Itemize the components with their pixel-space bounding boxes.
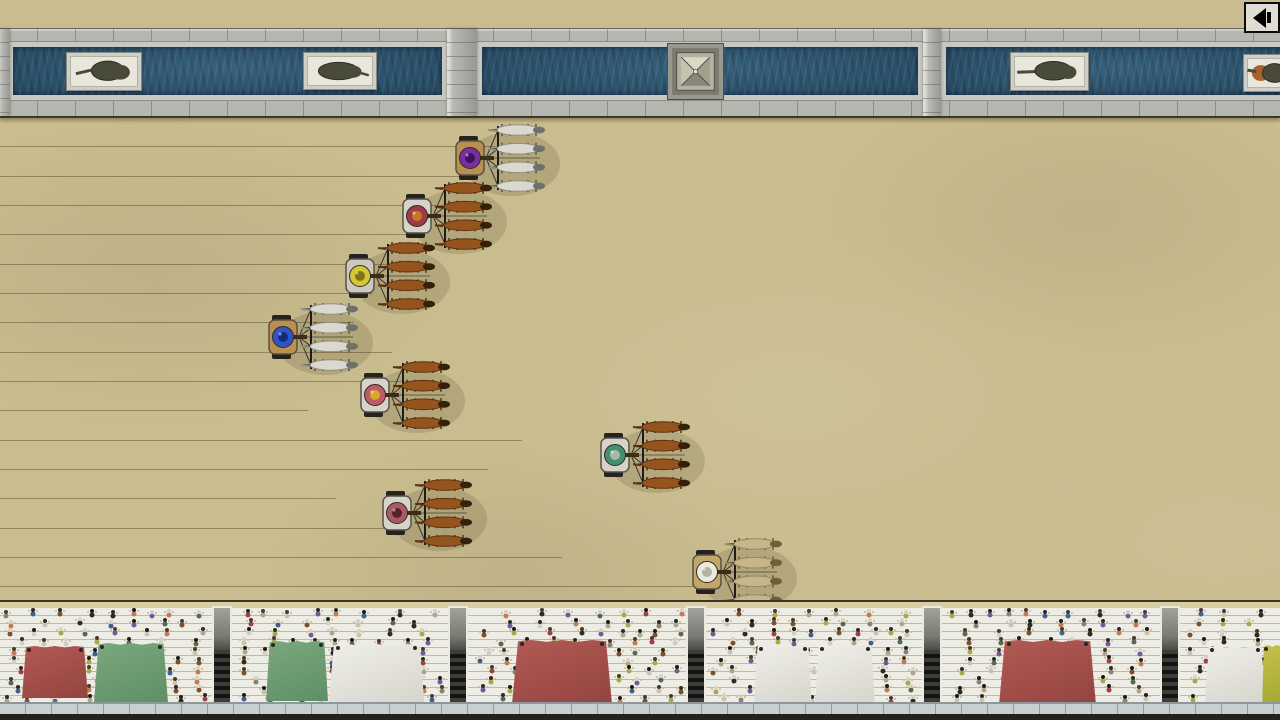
spectator <box>246 609 250 613</box>
spectator <box>88 694 92 698</box>
statue-monument <box>1011 53 1088 90</box>
spectator <box>350 638 354 642</box>
spectator <box>1027 627 1031 631</box>
awning-white <box>1205 646 1265 708</box>
spectator <box>868 618 872 622</box>
spectator <box>176 656 180 660</box>
spectator <box>580 627 584 631</box>
spectator <box>989 665 993 669</box>
awning-tie <box>759 647 763 651</box>
awning-tie <box>803 647 807 651</box>
spectator <box>1222 636 1226 640</box>
spectator <box>58 608 62 612</box>
spectator <box>626 619 630 623</box>
spectator <box>992 657 996 661</box>
awning-tie <box>79 648 83 652</box>
spectator <box>326 617 330 621</box>
spectator <box>574 618 578 622</box>
awning-green <box>266 641 328 701</box>
lane-line <box>0 146 505 147</box>
spectator <box>608 639 612 643</box>
chariot-team-maroon[interactable] <box>367 471 487 560</box>
spectator <box>958 686 962 690</box>
spectator <box>1107 684 1111 688</box>
spectator <box>242 693 246 697</box>
stairway-steps <box>924 650 940 702</box>
spectator <box>638 629 642 633</box>
spectator <box>731 637 735 641</box>
awning-tie <box>866 647 870 651</box>
spectator <box>438 676 442 680</box>
spectator <box>356 619 360 623</box>
spina-water-pool <box>941 42 1280 100</box>
awning-tie <box>1264 647 1268 651</box>
spectator <box>911 695 915 699</box>
spectator <box>247 627 251 631</box>
spectator <box>1088 628 1092 632</box>
grandstand <box>0 600 1280 720</box>
spectator <box>180 619 184 623</box>
spectator <box>1082 618 1086 622</box>
spectator <box>1066 610 1070 614</box>
spectator <box>242 637 246 641</box>
spectator <box>982 684 986 688</box>
spectator <box>132 619 136 623</box>
spectator <box>722 693 726 697</box>
stairway <box>922 606 942 704</box>
spectator <box>824 617 828 621</box>
spina-divider <box>923 29 941 116</box>
spectator <box>969 609 973 613</box>
spectator <box>837 627 841 631</box>
spectator <box>622 609 626 613</box>
spectator <box>132 608 136 612</box>
spectator <box>980 694 984 698</box>
spectator <box>111 610 115 614</box>
spectator <box>5 695 9 699</box>
statue-monument <box>67 53 141 90</box>
spectator <box>960 667 964 671</box>
spectator <box>963 628 967 632</box>
awning-tie <box>1256 648 1260 652</box>
spectator <box>388 628 392 632</box>
spectator <box>1202 637 1206 641</box>
spectator <box>1107 655 1111 659</box>
spectator <box>421 647 425 651</box>
spectator <box>1132 636 1136 640</box>
chariot-team-teal[interactable] <box>585 413 705 502</box>
spectator <box>167 609 171 613</box>
spectator <box>334 608 338 612</box>
spectator <box>867 609 871 613</box>
spectator <box>633 637 637 641</box>
spectator <box>711 667 715 671</box>
spectator <box>900 618 904 622</box>
awning-red <box>22 646 88 698</box>
spectator <box>150 610 154 614</box>
spectator <box>627 665 631 669</box>
spectator <box>1247 618 1251 622</box>
spectator <box>201 627 205 631</box>
spectator <box>42 638 46 642</box>
stairway-steps <box>1162 650 1178 702</box>
spectator <box>525 637 529 641</box>
spectator <box>197 684 201 688</box>
spectator <box>113 627 117 631</box>
spectator <box>285 610 289 614</box>
spectator <box>78 617 82 621</box>
spectator <box>904 610 908 614</box>
spectator <box>9 677 13 681</box>
awning-red <box>512 640 612 704</box>
spectator <box>512 627 516 631</box>
spectator <box>1193 675 1197 679</box>
statue-monument <box>1244 55 1280 91</box>
spectator <box>90 609 94 613</box>
race-track-view <box>0 0 1280 720</box>
awning-tie <box>336 646 340 650</box>
awning-tie <box>1210 648 1214 652</box>
spectator <box>203 693 207 697</box>
spectator <box>196 666 200 670</box>
spectator <box>4 610 8 614</box>
spectator <box>421 657 425 661</box>
spectator <box>1117 627 1121 631</box>
spectator <box>16 685 20 689</box>
spectator <box>635 677 639 681</box>
spectator <box>885 684 889 688</box>
spectator <box>398 609 402 613</box>
spectator <box>19 666 23 670</box>
spectator <box>487 647 491 651</box>
spectator <box>127 637 131 641</box>
spectator <box>1138 648 1142 652</box>
spectator <box>1106 638 1110 642</box>
lane-line <box>0 586 705 587</box>
spectator <box>1259 609 1263 613</box>
spectator <box>1024 608 1028 612</box>
spectator <box>653 657 657 661</box>
lane-line <box>0 469 488 470</box>
spectator <box>242 667 246 671</box>
spectator <box>669 694 673 698</box>
spectator <box>548 627 552 631</box>
spectator <box>679 686 683 690</box>
spectator <box>179 695 183 699</box>
spectator <box>243 646 247 650</box>
spectator <box>1256 638 1260 642</box>
spectator <box>499 638 503 642</box>
spectator <box>420 628 424 632</box>
spectator <box>598 610 602 614</box>
spectator <box>1101 675 1105 679</box>
awning-white <box>328 644 425 708</box>
spectator <box>828 637 832 641</box>
spectator <box>911 667 915 671</box>
spectator <box>1103 648 1107 652</box>
spectator <box>630 685 634 689</box>
spectator <box>659 674 663 678</box>
spectator <box>95 636 99 640</box>
spectator <box>440 685 444 689</box>
spectator <box>988 609 992 613</box>
spectator <box>145 628 149 632</box>
spectator <box>889 627 893 631</box>
spectator <box>426 637 430 641</box>
awning-tie <box>319 643 323 647</box>
spectator <box>1109 666 1113 670</box>
awning-tie <box>158 645 162 649</box>
spectator <box>1139 658 1143 662</box>
spectator <box>276 619 280 623</box>
spectator <box>841 618 845 622</box>
awning-red <box>999 640 1096 705</box>
lane-line <box>0 498 336 499</box>
chariot-team-red[interactable] <box>345 353 465 442</box>
spectator <box>1222 609 1226 613</box>
spectator <box>633 647 637 651</box>
awning-tie <box>100 645 104 649</box>
spectator <box>955 694 959 698</box>
spectator <box>87 665 91 669</box>
spectator <box>31 608 35 612</box>
awning-tie <box>27 648 31 652</box>
spectator <box>743 628 747 632</box>
spectator <box>87 684 91 688</box>
spectator <box>20 637 24 641</box>
spectator <box>508 620 512 624</box>
spectator <box>1137 685 1141 689</box>
spectator <box>661 648 665 652</box>
spectator <box>749 655 753 659</box>
grandstand-edge <box>0 714 1280 720</box>
awning-yellow <box>1262 645 1280 710</box>
spectator <box>261 609 265 613</box>
spectator <box>1007 608 1011 612</box>
spectator <box>362 610 366 614</box>
spectator <box>644 608 648 612</box>
spectator <box>906 677 910 681</box>
spectator <box>881 665 885 669</box>
spectator <box>165 628 169 632</box>
spectator <box>792 627 796 631</box>
spectator <box>1220 629 1224 633</box>
spectator <box>904 646 908 650</box>
spectator <box>1101 619 1105 623</box>
spectator <box>728 646 732 650</box>
spectator <box>1098 609 1102 613</box>
spectator <box>792 638 796 642</box>
awning-tie <box>271 643 275 647</box>
awning-white <box>815 645 875 708</box>
spectator <box>886 647 890 651</box>
spectator <box>997 648 1001 652</box>
stairway <box>448 606 468 704</box>
speaker-icon-box <box>1267 12 1271 23</box>
spectator <box>856 628 860 632</box>
spectator <box>59 627 63 631</box>
spectator <box>481 684 485 688</box>
spectator <box>1126 610 1130 614</box>
spectator <box>674 619 678 623</box>
spectator <box>617 648 621 652</box>
spectator <box>621 629 625 633</box>
spectator <box>8 628 12 632</box>
spectator <box>9 620 13 624</box>
spectator <box>1070 637 1074 641</box>
spectator <box>618 696 622 700</box>
spectator <box>195 676 199 680</box>
spectator <box>673 637 677 641</box>
spina-wall <box>0 28 1280 118</box>
statue-monument <box>304 53 376 89</box>
spectator <box>1028 619 1032 623</box>
spectator <box>1198 665 1202 669</box>
spectator <box>552 636 556 640</box>
spina-divider <box>0 29 10 116</box>
spectator <box>714 686 718 690</box>
spectator <box>1255 629 1259 633</box>
spectator <box>1131 676 1135 680</box>
spectator <box>1191 694 1195 698</box>
spectator <box>263 647 267 651</box>
spectator <box>968 646 972 650</box>
spectator <box>538 620 542 624</box>
spectator <box>1060 627 1064 631</box>
spectator <box>643 695 647 699</box>
awning-green <box>94 643 168 703</box>
spectator <box>617 674 621 678</box>
spectator <box>159 637 163 641</box>
spectator <box>650 636 654 640</box>
spectator <box>739 694 743 698</box>
spectator <box>174 685 178 689</box>
spectator <box>898 636 902 640</box>
awning-tie <box>1084 642 1088 646</box>
lane-line <box>0 293 372 294</box>
spectator <box>83 628 87 632</box>
spectator <box>490 665 494 669</box>
spectator <box>807 609 811 613</box>
awning-tie <box>1007 642 1011 646</box>
spectator <box>32 628 36 632</box>
spectator <box>12 647 16 651</box>
spectator <box>489 676 493 680</box>
spectator <box>809 629 813 633</box>
spectator <box>197 610 201 614</box>
grandstand-walkway <box>0 702 1280 714</box>
spectator <box>194 638 198 642</box>
spectator <box>773 609 777 613</box>
spectator <box>422 666 426 670</box>
spectator <box>647 667 651 671</box>
spectator <box>333 638 337 642</box>
spectator <box>197 657 201 661</box>
spectator <box>725 618 729 622</box>
spectator <box>168 667 172 671</box>
spectator <box>1144 693 1148 697</box>
spectator <box>884 657 888 661</box>
spectator <box>309 629 313 633</box>
stairway <box>1160 606 1180 704</box>
spectator <box>540 608 544 612</box>
spectator <box>43 619 47 623</box>
spectator <box>772 617 776 621</box>
spectator <box>812 666 816 670</box>
spectator <box>748 685 752 689</box>
spectator <box>93 648 97 652</box>
spectator <box>109 620 113 624</box>
spectator <box>889 696 893 700</box>
spectator <box>711 628 715 632</box>
spectator <box>884 674 888 678</box>
spectator <box>679 628 683 632</box>
spectator <box>478 655 482 659</box>
spectator <box>430 694 434 698</box>
spectator <box>732 675 736 679</box>
spectator <box>1188 647 1192 651</box>
spectator <box>502 648 506 652</box>
spectator <box>1145 627 1149 631</box>
spectator <box>1017 636 1021 640</box>
spectator <box>262 686 266 690</box>
spectator <box>977 676 981 680</box>
spectator <box>272 636 276 640</box>
spectator <box>834 608 838 612</box>
awning-tie <box>413 646 417 650</box>
stairway <box>686 606 706 704</box>
spectator <box>719 658 723 662</box>
spectator <box>730 665 734 669</box>
spectator <box>482 629 486 633</box>
spectator <box>968 657 972 661</box>
spectator <box>273 628 277 632</box>
spectator <box>12 656 16 660</box>
spectator <box>680 608 684 612</box>
spectator <box>1188 629 1192 633</box>
spectator <box>657 685 661 689</box>
spectator <box>675 665 679 669</box>
spectator <box>508 685 512 689</box>
spectator <box>852 637 856 641</box>
mute-button[interactable] <box>1244 2 1280 33</box>
spectator <box>737 608 741 612</box>
spectator <box>505 657 509 661</box>
awning-tie <box>600 642 604 646</box>
obelisk-monument <box>667 43 724 100</box>
spectator <box>501 693 505 697</box>
spectator <box>163 618 167 622</box>
spectator <box>909 684 913 688</box>
spectator <box>653 629 657 633</box>
speaker-icon <box>1253 8 1266 28</box>
spectator <box>242 656 246 660</box>
spectator <box>772 628 776 632</box>
spectator <box>657 620 661 624</box>
spectator <box>1143 610 1147 614</box>
spectator <box>750 619 754 623</box>
spectator <box>776 636 780 640</box>
spectator <box>1134 619 1138 623</box>
lane-line <box>0 528 384 529</box>
spectator <box>967 637 971 641</box>
spectator <box>626 658 630 662</box>
spectator <box>1009 619 1013 623</box>
stairway <box>212 606 232 704</box>
spectator <box>599 628 603 632</box>
awning-tie <box>820 647 824 651</box>
spectator <box>406 638 410 642</box>
